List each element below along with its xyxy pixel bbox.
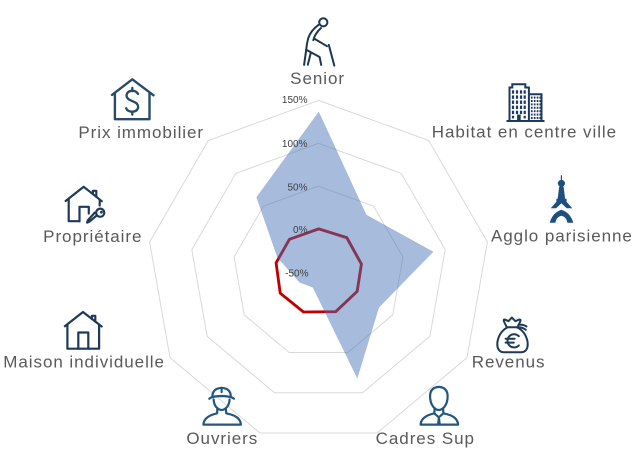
svg-text:Prix immobilier: Prix immobilier [78,123,204,142]
svg-text:-50%: -50% [285,269,308,280]
svg-text:0%: 0% [293,225,308,236]
svg-text:50%: 50% [287,182,307,193]
svg-text:Cadres Sup: Cadres Sup [376,429,475,448]
svg-text:Propriétaire: Propriétaire [43,227,142,246]
svg-text:Senior: Senior [290,69,345,88]
svg-text:Ouvriers: Ouvriers [186,429,258,448]
svg-text:Habitat en centre ville: Habitat en centre ville [432,123,617,142]
svg-text:Revenus: Revenus [472,353,546,372]
svg-text:Agglo parisienne: Agglo parisienne [491,227,633,246]
svg-text:Maison individuelle: Maison individuelle [3,353,165,372]
svg-text:150%: 150% [282,95,308,106]
svg-text:100%: 100% [282,139,308,150]
